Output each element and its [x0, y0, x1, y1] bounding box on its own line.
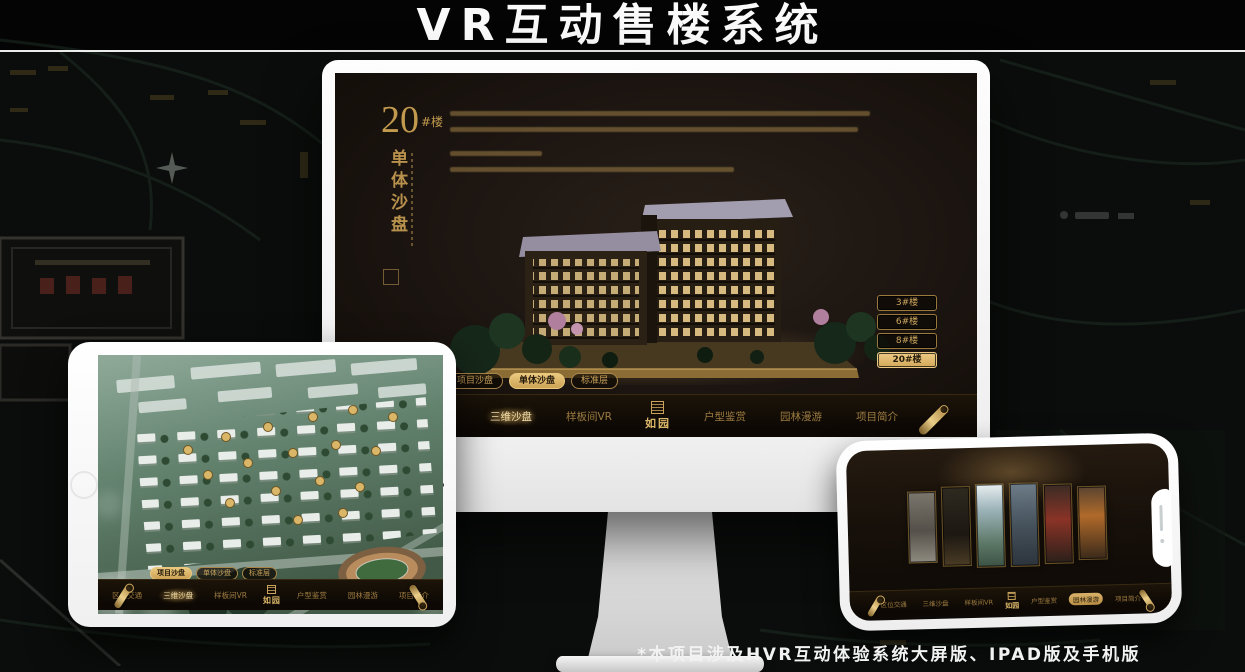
nav-item-floorplans[interactable]: 户型鉴赏 — [292, 588, 332, 603]
nav-item-showroom-vr[interactable]: 样板间VR — [960, 595, 997, 608]
nav-item-3d-sandtable-active[interactable]: 三维沙盘 — [158, 588, 198, 603]
scene-card[interactable] — [941, 486, 972, 567]
nav-item-3d-sandtable[interactable]: 三维沙盘 — [918, 597, 952, 610]
scroll-handle-icon[interactable] — [917, 405, 949, 437]
brand-logo: 如园 — [645, 401, 671, 431]
phone-main-nav: 区位交通 三维沙盘 样板间VR 如园 户型鉴赏 园林漫游 项目简介 — [849, 583, 1172, 618]
description-line — [450, 127, 858, 132]
brand-name: 如园 — [1005, 600, 1019, 610]
title-divider — [0, 50, 1245, 52]
nav-item-floorplans[interactable]: 户型鉴赏 — [1027, 594, 1061, 607]
nav-item-garden-roam[interactable]: 园林漫游 — [343, 588, 383, 603]
brand-name: 如园 — [645, 415, 671, 431]
brand-seal-icon — [1008, 591, 1016, 599]
building-button-6[interactable]: 6#楼 — [877, 314, 937, 330]
unit-suffix: #楼 — [421, 115, 443, 129]
description-line — [450, 111, 870, 116]
brand-name: 如园 — [263, 595, 281, 606]
tablet-device: 项目沙盘 单体沙盘 标准层 区位交通 三维沙盘 样板间VR 如园 户型鉴赏 园林… — [68, 342, 456, 627]
tablet-app-screen: 项目沙盘 单体沙盘 标准层 区位交通 三维沙盘 样板间VR 如园 户型鉴赏 园林… — [98, 355, 443, 614]
nav-item-project-intro[interactable]: 项目简介 — [851, 407, 903, 426]
unit-number: 20 — [381, 99, 419, 141]
unit-heading: 20#楼 — [381, 101, 443, 139]
building-button-stack: 3#楼 6#楼 8#楼 20#楼 — [877, 295, 937, 368]
brand-seal-icon — [651, 401, 664, 414]
scene-gallery — [907, 480, 1108, 569]
subtab-standard-floor[interactable]: 标准层 — [571, 373, 618, 389]
phone-notch — [1151, 489, 1173, 567]
scene-card[interactable] — [1077, 485, 1108, 560]
footnote-text: *本项目涉及HVR互动体验系统大屏版、IPAD版及手机版 — [637, 640, 1141, 665]
monitor-stand-neck — [588, 510, 732, 658]
scene-card[interactable] — [907, 491, 938, 564]
scene-card[interactable] — [1043, 483, 1074, 564]
scene-card[interactable] — [1009, 482, 1040, 567]
brand-logo: 如园 — [263, 585, 281, 606]
building-button-3[interactable]: 3#楼 — [877, 295, 937, 311]
brand-logo: 如园 — [1005, 591, 1019, 610]
description-line — [450, 151, 542, 156]
tablet-home-button[interactable] — [70, 471, 98, 499]
building-button-8[interactable]: 8#楼 — [877, 333, 937, 349]
brand-seal-icon — [267, 585, 276, 594]
phone-camera-icon — [1160, 539, 1164, 543]
nav-item-showroom-vr[interactable]: 样板间VR — [561, 407, 617, 426]
nav-item-garden-roam-active[interactable]: 园林漫游 — [1069, 593, 1103, 606]
building-render — [405, 157, 905, 385]
phone-device: 区位交通 三维沙盘 样板间VR 如园 户型鉴赏 园林漫游 项目简介 — [836, 433, 1183, 632]
scene-card[interactable] — [975, 483, 1006, 568]
nav-item-3d-sandtable-active[interactable]: 三维沙盘 — [485, 407, 537, 426]
phone-speaker-icon — [1159, 505, 1163, 531]
nav-item-floorplans[interactable]: 户型鉴赏 — [699, 407, 751, 426]
tablet-main-nav: 区位交通 三维沙盘 样板间VR 如园 户型鉴赏 园林漫游 项目简介 — [98, 579, 443, 610]
section-seal-icon — [383, 269, 399, 285]
page-title: VR互动售楼系统 — [0, 0, 1245, 52]
nav-item-showroom-vr[interactable]: 样板间VR — [209, 588, 252, 603]
subtab-single-sandtable-active[interactable]: 单体沙盘 — [509, 373, 565, 389]
phone-app-screen: 区位交通 三维沙盘 样板间VR 如园 户型鉴赏 园林漫游 项目简介 — [846, 443, 1172, 621]
building-button-20-active[interactable]: 20#楼 — [877, 352, 937, 368]
sandtable-subtabs: 项目沙盘 单体沙盘 标准层 — [447, 373, 618, 389]
nav-item-garden-roam[interactable]: 园林漫游 — [775, 407, 827, 426]
